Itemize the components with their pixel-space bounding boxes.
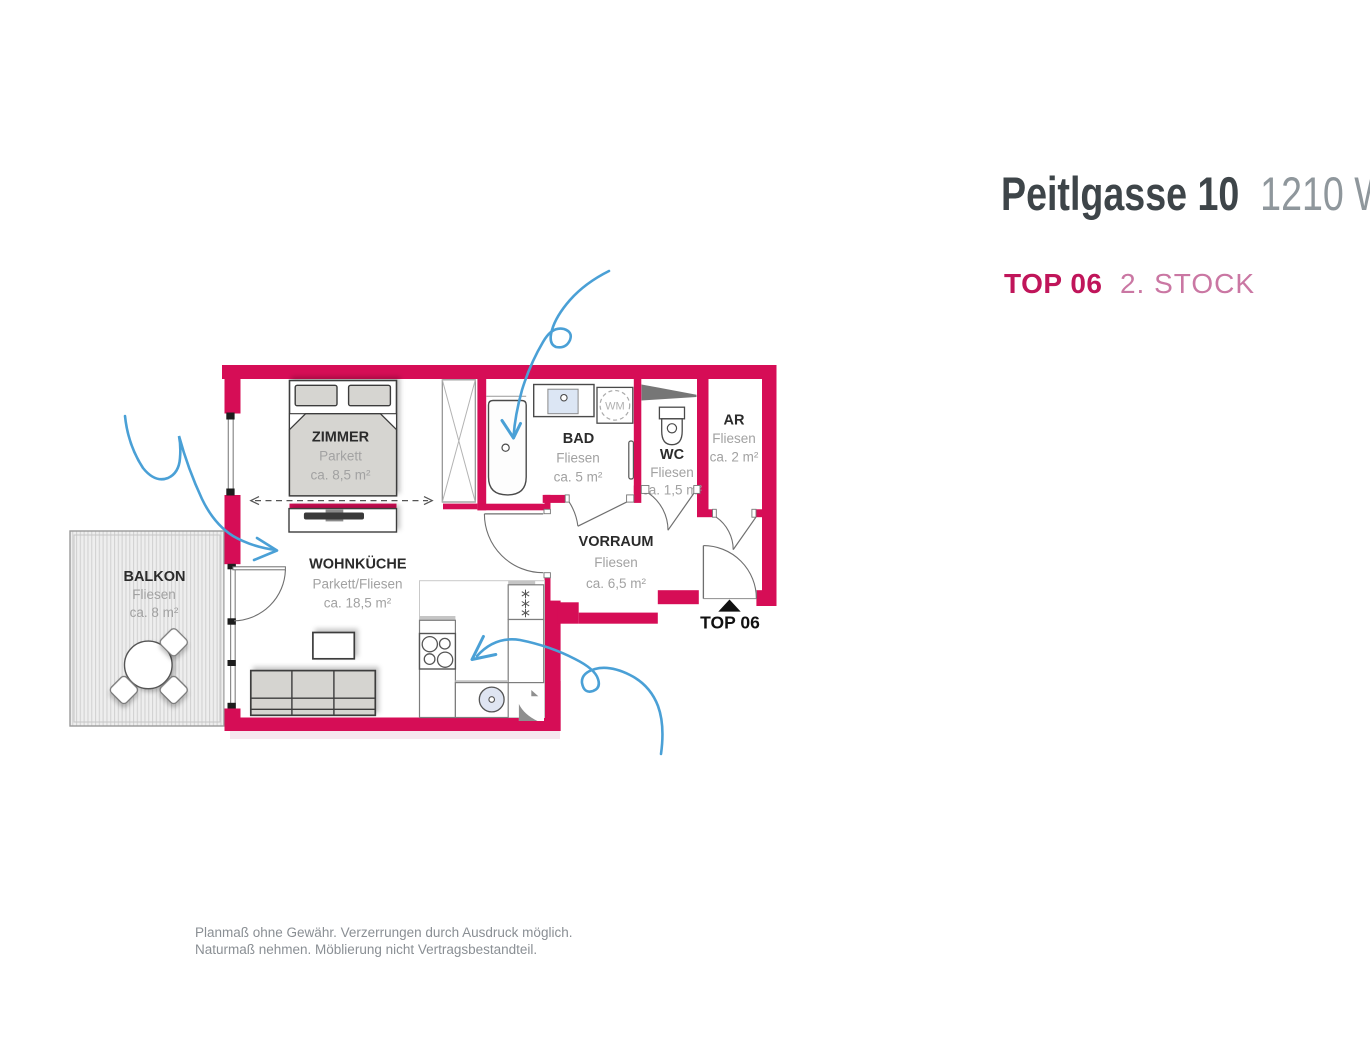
svg-text:WC: WC: [660, 447, 685, 463]
svg-text:Parkett/Fliesen: Parkett/Fliesen: [312, 577, 402, 592]
svg-text:Fliesen: Fliesen: [132, 587, 176, 602]
svg-text:WM: WM: [605, 400, 625, 412]
svg-text:ZIMMER: ZIMMER: [312, 430, 370, 446]
svg-text:TOP 06: TOP 06: [700, 613, 760, 633]
svg-text:Fliesen: Fliesen: [556, 451, 600, 466]
svg-text:AR: AR: [724, 413, 745, 429]
svg-text:ca. 5 m²: ca. 5 m²: [554, 470, 603, 485]
svg-text:ca. 6,5 m²: ca. 6,5 m²: [586, 576, 647, 591]
svg-text:BAD: BAD: [563, 431, 594, 447]
svg-text:Parkett: Parkett: [319, 449, 362, 464]
svg-text:Fliesen: Fliesen: [650, 465, 694, 480]
svg-text:Fliesen: Fliesen: [712, 431, 756, 446]
svg-text:WOHNKÜCHE: WOHNKÜCHE: [309, 556, 407, 573]
svg-text:ca. 2 m²: ca. 2 m²: [710, 450, 759, 465]
svg-text:ca. 8,5 m²: ca. 8,5 m²: [310, 468, 371, 483]
svg-text:VORRAUM: VORRAUM: [579, 534, 654, 550]
svg-text:ca. 18,5 m²: ca. 18,5 m²: [324, 596, 392, 611]
svg-text:BALKON: BALKON: [123, 569, 185, 585]
svg-text:ca. 8 m²: ca. 8 m²: [130, 605, 179, 620]
svg-text:Fliesen: Fliesen: [594, 555, 638, 570]
